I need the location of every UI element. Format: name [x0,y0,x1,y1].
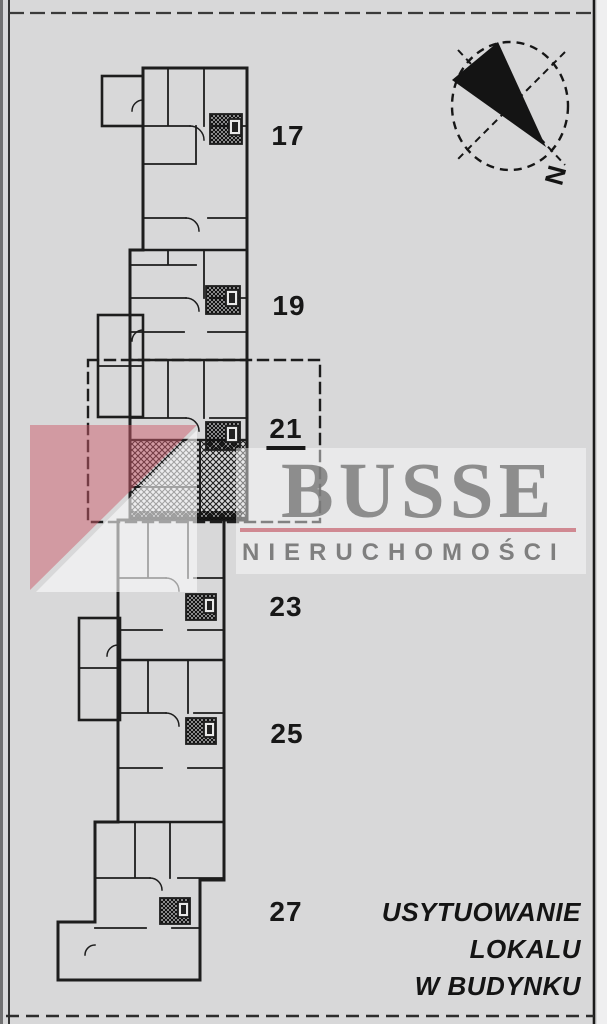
section-label-25: 25 [270,718,303,750]
wing-room [79,618,120,720]
section-label-21-underlined: 21 [266,413,305,450]
stairwell-block [186,718,216,744]
brand-wordmark: BUSSE [281,452,556,531]
caption-line-2: LOKALU [321,931,581,968]
north-label: N [539,162,573,188]
stairwell-block [206,286,240,314]
section-label-17: 17 [271,120,304,152]
compass-needle [452,42,546,147]
section-label-23: 23 [269,591,302,623]
page-edge-left [0,0,3,1024]
stairwell-block [210,114,242,144]
stairwell-block [206,422,240,450]
section-label-21-selected: 21 [266,413,305,445]
page-edge-right [597,0,607,1024]
brand-subtitle: NIERUCHOMOŚCI [242,539,566,567]
caption-title-block: USYTUOWANIE LOKALU W BUDYNKU [321,894,581,1005]
section-label-19: 19 [272,290,305,322]
scanned-page: N 17 19 21 23 25 27 BUSSE NIERUCHOMOŚCI … [0,0,607,1024]
stairwell-block [186,594,216,620]
caption-line-1: USYTUOWANIE [321,894,581,931]
compass-rose: N [452,42,572,188]
caption-line-3: W BUDYNKU [321,968,581,1005]
stairwell-block [160,898,190,924]
section-label-27: 27 [269,896,302,928]
brand-underline [240,528,576,532]
